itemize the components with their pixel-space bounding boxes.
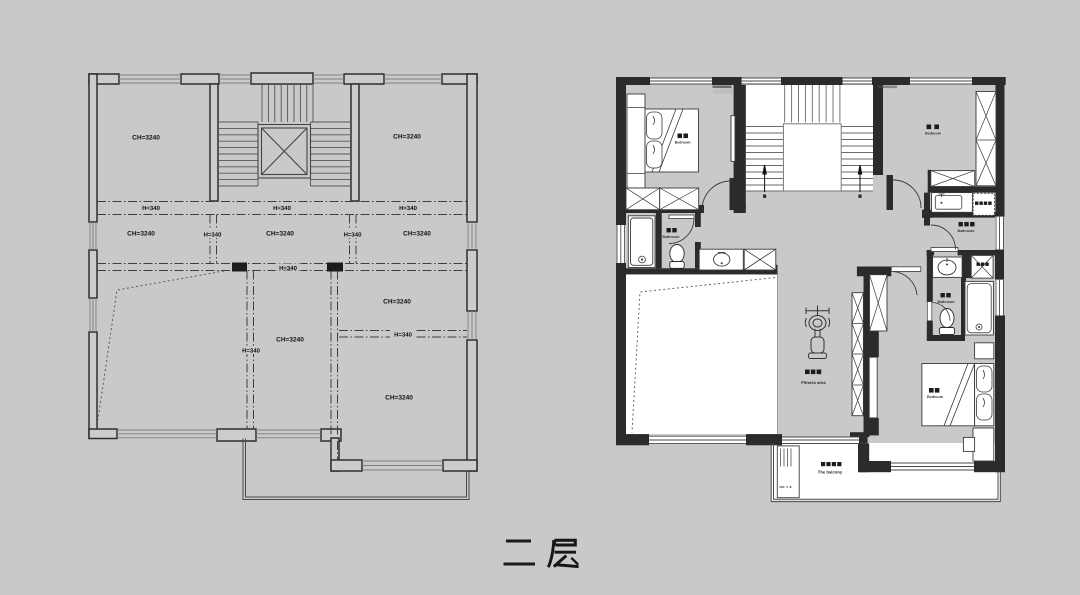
svg-text:Bathroom: Bathroom	[958, 229, 975, 233]
svg-text:H=340: H=340	[399, 205, 418, 212]
svg-text:CH=3240: CH=3240	[266, 231, 294, 238]
svg-text:Bedroom: Bedroom	[927, 395, 943, 399]
svg-text:H=340: H=340	[204, 232, 223, 239]
svg-text:CH=3240: CH=3240	[403, 231, 431, 238]
svg-text:H=340: H=340	[394, 332, 413, 339]
svg-text:H=340: H=340	[242, 348, 261, 355]
svg-text:H=340: H=340	[344, 232, 363, 239]
svg-text:CH=3240: CH=3240	[393, 134, 421, 141]
svg-text:H=340: H=340	[279, 265, 298, 272]
svg-text:H=340: H=340	[142, 205, 161, 212]
svg-text:Bathroom: Bathroom	[663, 235, 680, 239]
svg-text:Fitness area: Fitness area	[801, 380, 826, 385]
svg-text:CH=3240: CH=3240	[385, 395, 413, 402]
svg-text:Bedroom: Bedroom	[925, 132, 941, 136]
svg-text:CH=3240: CH=3240	[276, 337, 304, 344]
svg-text:Bathroom: Bathroom	[938, 300, 955, 304]
svg-text:CH=3240: CH=3240	[132, 135, 160, 142]
svg-text:CH=3240: CH=3240	[383, 299, 411, 306]
svg-text:The balcony: The balcony	[818, 470, 843, 475]
svg-text:CH=3240: CH=3240	[127, 231, 155, 238]
svg-text:Bedroom: Bedroom	[675, 141, 691, 145]
svg-text:H=340: H=340	[273, 205, 292, 212]
